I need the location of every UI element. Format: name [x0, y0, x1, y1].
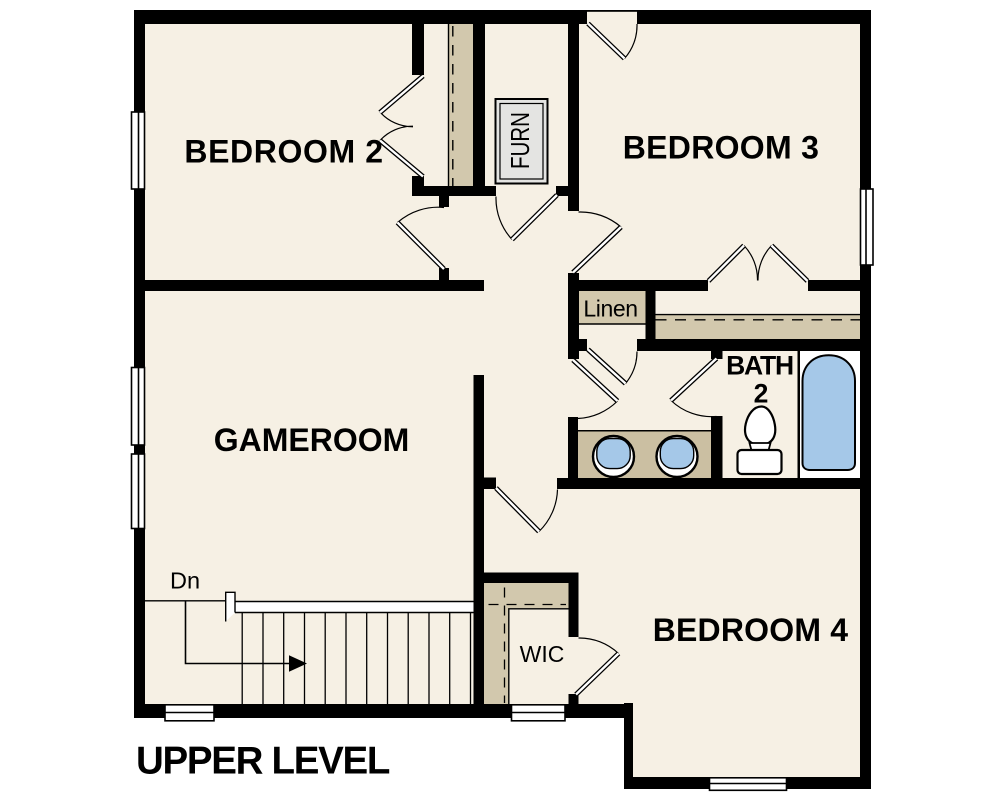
- svg-text:UPPER LEVEL: UPPER LEVEL: [136, 740, 390, 783]
- svg-text:BEDROOM 2: BEDROOM 2: [184, 134, 383, 170]
- svg-text:2: 2: [754, 379, 769, 409]
- svg-text:BATH: BATH: [726, 351, 793, 381]
- svg-text:Linen: Linen: [583, 296, 637, 322]
- svg-text:BEDROOM 4: BEDROOM 4: [653, 612, 849, 648]
- svg-text:BEDROOM 3: BEDROOM 3: [623, 130, 820, 166]
- svg-text:Dn: Dn: [170, 568, 200, 594]
- svg-text:FURN: FURN: [506, 112, 535, 169]
- svg-text:GAMEROOM: GAMEROOM: [214, 422, 410, 458]
- svg-text:WIC: WIC: [520, 641, 565, 667]
